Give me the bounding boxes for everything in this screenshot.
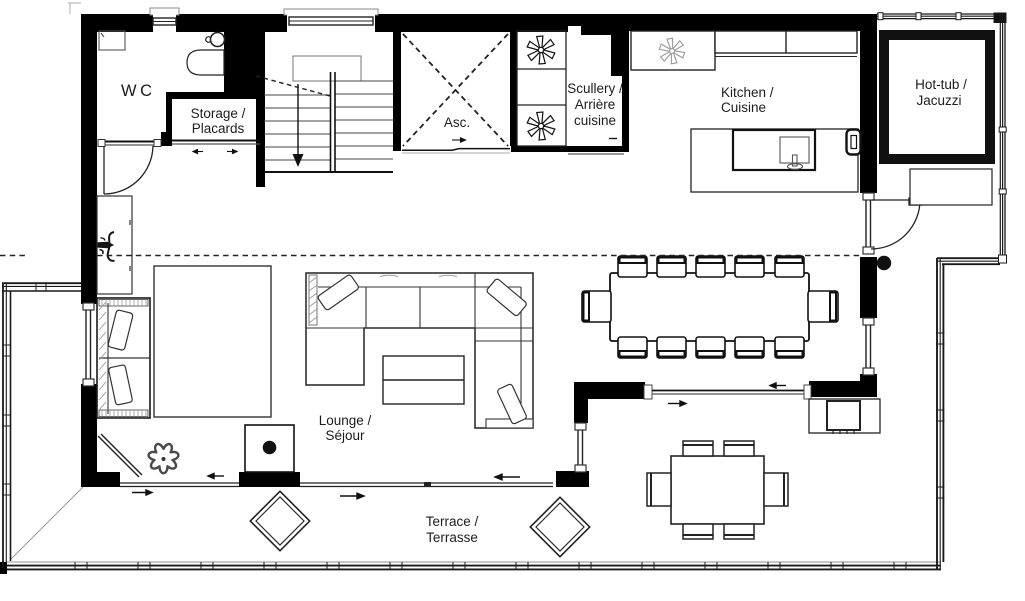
svg-text:Arrière: Arrière: [575, 97, 616, 112]
svg-text:Séjour: Séjour: [325, 428, 365, 443]
svg-text:cuisine: cuisine: [574, 113, 616, 128]
svg-text:Kitchen /: Kitchen /: [721, 85, 774, 100]
svg-text:Scullery /: Scullery /: [567, 81, 623, 96]
svg-text:Terrasse: Terrasse: [426, 530, 478, 545]
svg-text:Jacuzzi: Jacuzzi: [916, 93, 961, 108]
svg-text:Lounge /: Lounge /: [319, 413, 372, 428]
svg-text:Storage /: Storage /: [191, 106, 246, 121]
svg-text:Placards: Placards: [192, 121, 245, 136]
svg-text:Asc.: Asc.: [444, 115, 470, 130]
svg-text:Cuisine: Cuisine: [721, 100, 766, 115]
svg-text:Terrace /: Terrace /: [426, 514, 479, 529]
svg-text:WC: WC: [121, 82, 156, 100]
svg-text:Hot-tub /: Hot-tub /: [915, 77, 967, 92]
